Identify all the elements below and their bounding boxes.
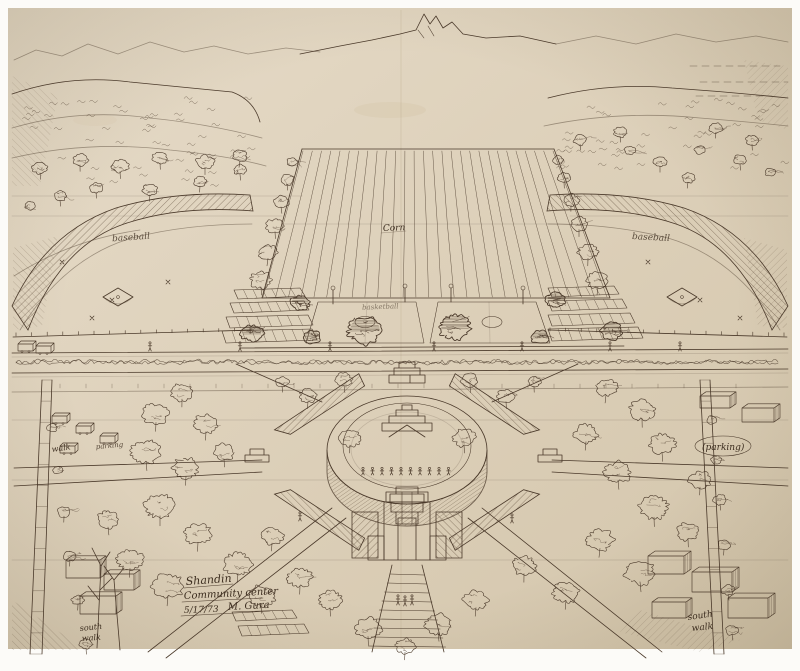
label-parking-right: (parking) xyxy=(702,442,745,453)
architectural-sketch: Shandin Community center 5/17/73 M. Gura… xyxy=(0,0,800,671)
label-baseball-right: baseball xyxy=(632,232,671,244)
label-walk-bottom-left: walk xyxy=(82,633,102,643)
scanned-drawing: Shandin Community center 5/17/73 M. Gura… xyxy=(0,0,800,671)
title-date: 5/17/73 xyxy=(184,605,219,616)
label-basketball: basketball xyxy=(362,302,399,311)
paper-sheet xyxy=(8,8,792,649)
